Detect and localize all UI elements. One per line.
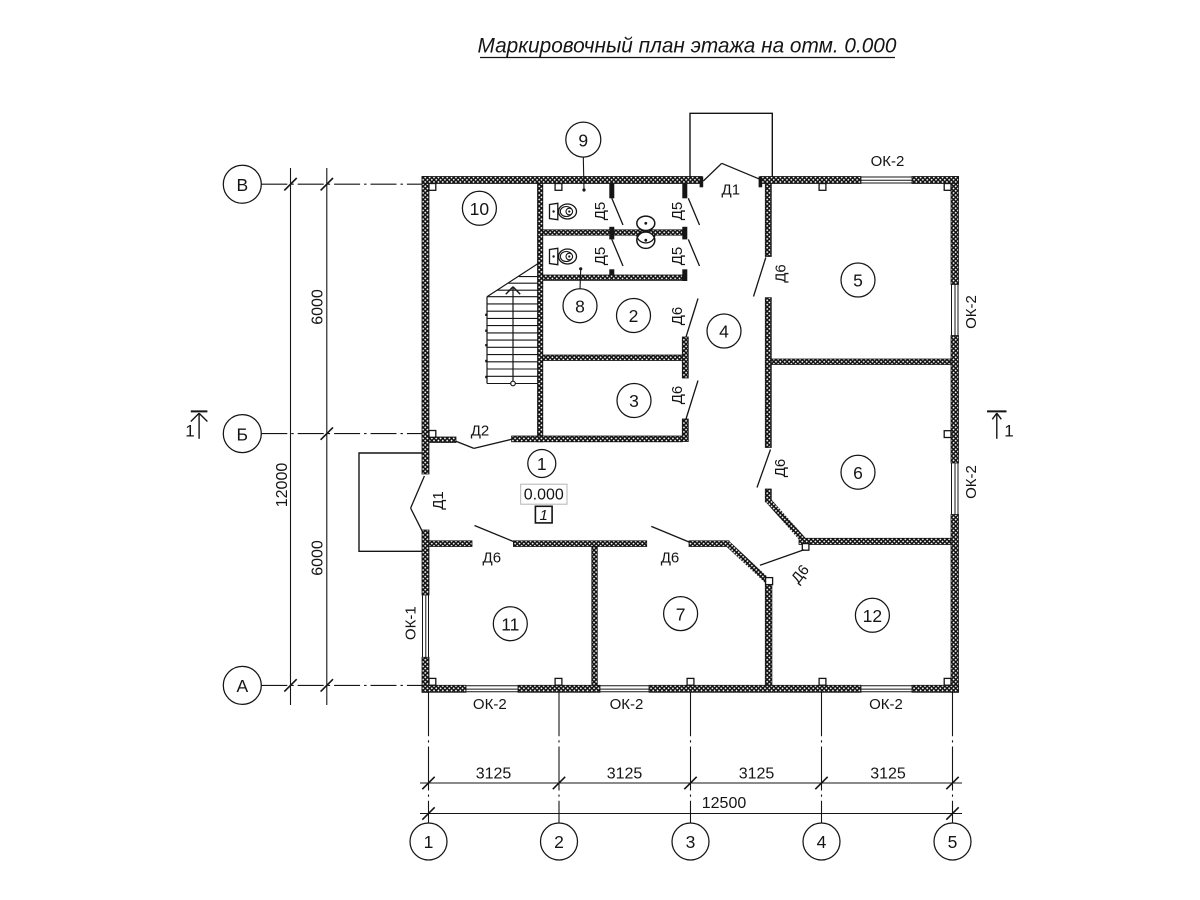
svg-text:Д5: Д5 [592, 247, 609, 266]
svg-text:ОК-2: ОК-2 [871, 153, 905, 170]
svg-text:Д5: Д5 [669, 202, 686, 221]
svg-text:Б: Б [237, 424, 248, 444]
svg-text:12: 12 [863, 606, 882, 626]
svg-text:6000: 6000 [309, 540, 326, 576]
svg-text:3: 3 [686, 832, 696, 852]
svg-text:ОК-2: ОК-2 [869, 696, 903, 713]
svg-text:1: 1 [185, 422, 194, 441]
svg-text:Д5: Д5 [669, 247, 686, 266]
svg-text:В: В [236, 175, 248, 195]
svg-text:3: 3 [629, 391, 639, 411]
svg-text:3125: 3125 [739, 766, 775, 783]
svg-text:1: 1 [1004, 422, 1013, 441]
svg-text:5: 5 [948, 832, 958, 852]
svg-text:8: 8 [575, 296, 585, 316]
svg-text:ОК-2: ОК-2 [963, 465, 980, 499]
svg-text:3125: 3125 [607, 766, 643, 783]
svg-text:ОК-2: ОК-2 [963, 295, 980, 329]
svg-text:6: 6 [853, 463, 863, 483]
svg-text:2: 2 [554, 832, 564, 852]
svg-text:А: А [236, 676, 248, 696]
svg-text:1: 1 [540, 507, 548, 524]
svg-text:Д1: Д1 [722, 182, 741, 199]
svg-text:5: 5 [853, 271, 863, 291]
svg-text:Д6: Д6 [669, 307, 686, 326]
svg-text:6000: 6000 [309, 289, 326, 325]
svg-text:0.000: 0.000 [524, 487, 564, 504]
svg-text:4: 4 [817, 832, 827, 852]
svg-text:12500: 12500 [702, 795, 747, 812]
svg-text:3125: 3125 [476, 766, 512, 783]
svg-text:ОК-2: ОК-2 [473, 696, 507, 713]
svg-text:10: 10 [470, 199, 490, 219]
svg-text:ОК-2: ОК-2 [610, 696, 644, 713]
svg-text:Маркировочный план этажа на от: Маркировочный план этажа на отм. 0.000 [478, 35, 897, 58]
svg-text:4: 4 [719, 322, 729, 342]
svg-text:9: 9 [578, 130, 588, 150]
svg-text:Д6: Д6 [483, 549, 502, 566]
svg-text:7: 7 [676, 604, 686, 624]
svg-text:1: 1 [424, 832, 434, 852]
svg-text:Д6: Д6 [661, 550, 680, 567]
svg-text:ОК-1: ОК-1 [402, 606, 419, 640]
svg-text:Д6: Д6 [669, 386, 686, 405]
svg-text:11: 11 [501, 614, 519, 634]
svg-text:Д5: Д5 [592, 202, 609, 221]
svg-text:1: 1 [537, 454, 547, 474]
svg-text:Д1: Д1 [430, 491, 447, 510]
svg-text:2: 2 [629, 306, 639, 326]
svg-text:3125: 3125 [870, 766, 906, 783]
svg-text:Д6: Д6 [772, 459, 789, 478]
svg-text:Д6: Д6 [773, 264, 790, 283]
svg-text:Д2: Д2 [471, 423, 490, 440]
svg-text:12000: 12000 [274, 463, 291, 508]
